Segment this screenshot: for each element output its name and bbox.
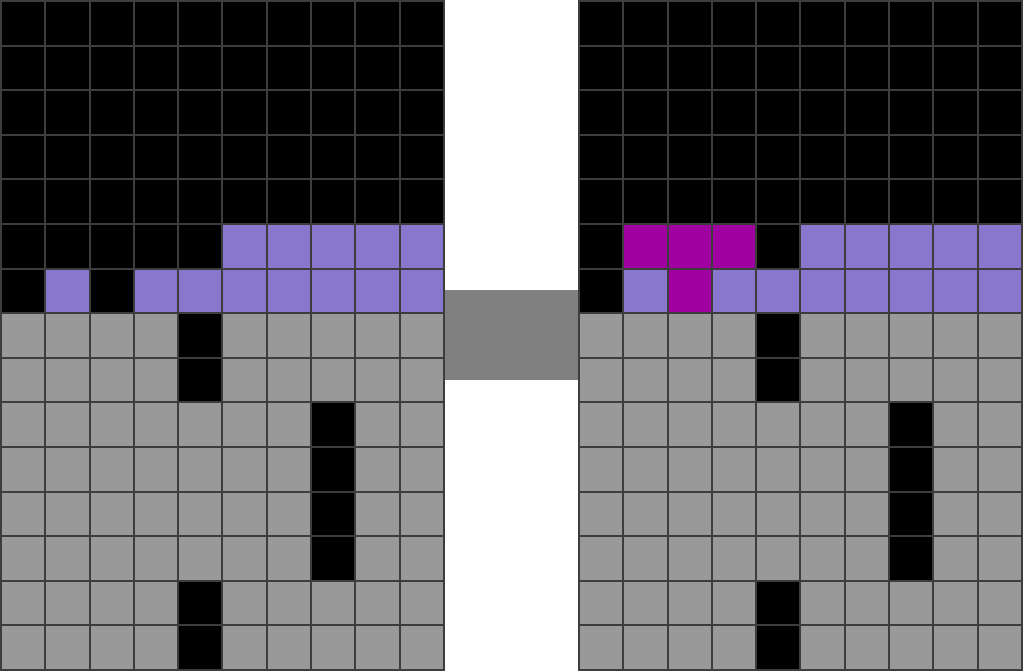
left-grid-cell-r12-c7: [312, 537, 354, 580]
right-grid-cell-r11-c1: [624, 493, 666, 536]
left-grid-cell-r1-c5: [223, 47, 265, 90]
right-grid-cell-r10-c8: [934, 448, 976, 491]
left-grid-cell-r14-c0: [2, 626, 44, 669]
left-grid-cell-r11-c2: [91, 493, 133, 536]
left-grid-cell-r11-c9: [401, 493, 443, 536]
left-grid-cell-r13-c9: [401, 582, 443, 625]
right-grid-cell-r5-c7: [890, 225, 932, 268]
right-grid-cell-r7-c6: [846, 314, 888, 357]
right-grid-cell-r3-c0: [580, 136, 622, 179]
right-grid-cell-r7-c2: [669, 314, 711, 357]
right-grid-cell-r7-c3: [713, 314, 755, 357]
right-grid-cell-r14-c9: [979, 626, 1021, 669]
left-grid-cell-r1-c0: [2, 47, 44, 90]
left-grid-cell-r8-c8: [356, 359, 398, 402]
right-grid-cell-r7-c4: [757, 314, 799, 357]
left-grid-cell-r5-c5: [223, 225, 265, 268]
left-grid-cell-r10-c1: [46, 448, 88, 491]
left-grid-cell-r12-c1: [46, 537, 88, 580]
right-grid-cell-r14-c4: [757, 626, 799, 669]
right-grid-cell-r9-c2: [669, 403, 711, 446]
left-grid-cell-r5-c2: [91, 225, 133, 268]
game-view: [0, 0, 1023, 671]
right-grid-cell-r13-c8: [934, 582, 976, 625]
left-grid-cell-r5-c1: [46, 225, 88, 268]
right-grid-cell-r11-c4: [757, 493, 799, 536]
right-grid-cell-r12-c1: [624, 537, 666, 580]
right-grid-cell-r14-c1: [624, 626, 666, 669]
right-grid-cell-r7-c0: [580, 314, 622, 357]
right-grid-cell-r4-c1: [624, 180, 666, 223]
left-grid-cell-r0-c1: [46, 2, 88, 45]
right-grid-cell-r2-c2: [669, 91, 711, 134]
right-grid-cell-r11-c7: [890, 493, 932, 536]
left-grid-cell-r2-c8: [356, 91, 398, 134]
left-grid-cell-r11-c4: [179, 493, 221, 536]
left-grid-cell-r1-c8: [356, 47, 398, 90]
right-grid-cell-r3-c1: [624, 136, 666, 179]
bridge-block: [445, 290, 578, 380]
right-grid-cell-r5-c9: [979, 225, 1021, 268]
left-grid-cell-r14-c8: [356, 626, 398, 669]
right-grid-cell-r0-c9: [979, 2, 1021, 45]
right-grid-cell-r5-c5: [801, 225, 843, 268]
left-grid-cell-r1-c9: [401, 47, 443, 90]
left-grid-cell-r10-c8: [356, 448, 398, 491]
right-grid-cell-r1-c4: [757, 47, 799, 90]
right-grid-cell-r0-c6: [846, 2, 888, 45]
right-grid-cell-r2-c6: [846, 91, 888, 134]
right-grid-cell-r1-c7: [890, 47, 932, 90]
right-grid-cell-r11-c3: [713, 493, 755, 536]
left-grid-cell-r10-c2: [91, 448, 133, 491]
left-grid-cell-r9-c1: [46, 403, 88, 446]
left-grid-cell-r11-c5: [223, 493, 265, 536]
left-grid-cell-r13-c3: [135, 582, 177, 625]
right-grid-cell-r12-c4: [757, 537, 799, 580]
left-grid-cell-r2-c6: [268, 91, 310, 134]
left-grid: [0, 0, 445, 671]
right-grid-cell-r6-c7: [890, 270, 932, 313]
left-grid-cell-r8-c1: [46, 359, 88, 402]
right-grid-cell-r2-c7: [890, 91, 932, 134]
right-grid-cell-r2-c8: [934, 91, 976, 134]
right-grid-cell-r5-c2: [669, 225, 711, 268]
left-grid-cell-r5-c3: [135, 225, 177, 268]
right-grid-cell-r9-c0: [580, 403, 622, 446]
left-grid-cell-r12-c9: [401, 537, 443, 580]
left-grid-cell-r0-c4: [179, 2, 221, 45]
right-grid-cell-r13-c9: [979, 582, 1021, 625]
right-grid-cell-r8-c4: [757, 359, 799, 402]
left-grid-cell-r6-c8: [356, 270, 398, 313]
right-grid-cell-r3-c3: [713, 136, 755, 179]
right-grid-cell-r9-c9: [979, 403, 1021, 446]
left-grid-cell-r1-c2: [91, 47, 133, 90]
right-grid-cell-r12-c3: [713, 537, 755, 580]
right-grid-cell-r8-c9: [979, 359, 1021, 402]
right-grid-cell-r4-c2: [669, 180, 711, 223]
left-grid-cell-r2-c0: [2, 91, 44, 134]
left-grid-cell-r6-c6: [268, 270, 310, 313]
left-grid-cell-r0-c7: [312, 2, 354, 45]
left-grid-cell-r0-c3: [135, 2, 177, 45]
right-grid-cell-r8-c2: [669, 359, 711, 402]
left-grid-cell-r3-c6: [268, 136, 310, 179]
left-grid-cell-r10-c0: [2, 448, 44, 491]
right-grid-cell-r14-c6: [846, 626, 888, 669]
left-grid-cell-r14-c7: [312, 626, 354, 669]
right-grid-cell-r6-c6: [846, 270, 888, 313]
right-grid-cell-r2-c0: [580, 91, 622, 134]
right-grid-cell-r8-c1: [624, 359, 666, 402]
left-grid-cell-r12-c4: [179, 537, 221, 580]
right-grid-cell-r12-c2: [669, 537, 711, 580]
left-grid-cell-r11-c3: [135, 493, 177, 536]
left-grid-cell-r13-c2: [91, 582, 133, 625]
left-grid-cell-r2-c4: [179, 91, 221, 134]
right-grid-cell-r9-c1: [624, 403, 666, 446]
right-grid-cell-r0-c8: [934, 2, 976, 45]
right-grid-cell-r3-c8: [934, 136, 976, 179]
right-grid: [578, 0, 1023, 671]
left-grid-cell-r9-c0: [2, 403, 44, 446]
left-grid-cell-r2-c1: [46, 91, 88, 134]
right-grid-cell-r1-c0: [580, 47, 622, 90]
left-grid-cell-r7-c9: [401, 314, 443, 357]
left-grid-cell-r4-c6: [268, 180, 310, 223]
right-grid-cell-r14-c8: [934, 626, 976, 669]
right-grid-cell-r10-c4: [757, 448, 799, 491]
left-grid-cell-r13-c4: [179, 582, 221, 625]
left-grid-cell-r5-c6: [268, 225, 310, 268]
left-grid-cell-r10-c5: [223, 448, 265, 491]
left-grid-cell-r2-c5: [223, 91, 265, 134]
right-grid-cell-r12-c9: [979, 537, 1021, 580]
left-grid-cell-r14-c1: [46, 626, 88, 669]
right-grid-cell-r9-c6: [846, 403, 888, 446]
left-grid-cell-r4-c5: [223, 180, 265, 223]
left-grid-cell-r14-c5: [223, 626, 265, 669]
right-grid-cell-r3-c5: [801, 136, 843, 179]
left-grid-cell-r12-c2: [91, 537, 133, 580]
right-grid-cell-r14-c7: [890, 626, 932, 669]
right-grid-cell-r14-c2: [669, 626, 711, 669]
left-grid-cell-r6-c2: [91, 270, 133, 313]
left-grid-cell-r4-c1: [46, 180, 88, 223]
right-grid-cell-r9-c7: [890, 403, 932, 446]
left-grid-cell-r14-c4: [179, 626, 221, 669]
left-grid-cell-r7-c5: [223, 314, 265, 357]
right-grid-cell-r8-c3: [713, 359, 755, 402]
right-grid-cell-r0-c3: [713, 2, 755, 45]
right-grid-cell-r0-c1: [624, 2, 666, 45]
right-grid-cell-r6-c2: [669, 270, 711, 313]
left-grid-cell-r4-c8: [356, 180, 398, 223]
left-grid-cell-r4-c3: [135, 180, 177, 223]
left-grid-cell-r5-c4: [179, 225, 221, 268]
right-grid-cell-r13-c6: [846, 582, 888, 625]
left-grid-cell-r6-c3: [135, 270, 177, 313]
left-grid-cell-r9-c3: [135, 403, 177, 446]
right-grid-cell-r12-c6: [846, 537, 888, 580]
right-grid-cell-r6-c1: [624, 270, 666, 313]
right-grid-cell-r8-c8: [934, 359, 976, 402]
left-grid-cell-r0-c0: [2, 2, 44, 45]
right-grid-cell-r1-c9: [979, 47, 1021, 90]
left-grid-cell-r13-c0: [2, 582, 44, 625]
left-grid-cell-r1-c7: [312, 47, 354, 90]
left-grid-cell-r10-c3: [135, 448, 177, 491]
left-grid-cell-r4-c0: [2, 180, 44, 223]
right-grid-cell-r11-c2: [669, 493, 711, 536]
left-grid-cell-r8-c9: [401, 359, 443, 402]
left-grid-cell-r10-c7: [312, 448, 354, 491]
left-grid-cell-r5-c8: [356, 225, 398, 268]
right-grid-cell-r11-c8: [934, 493, 976, 536]
right-grid-cell-r5-c1: [624, 225, 666, 268]
left-grid-cell-r14-c3: [135, 626, 177, 669]
left-grid-cell-r6-c7: [312, 270, 354, 313]
left-grid-cell-r0-c2: [91, 2, 133, 45]
right-grid-cell-r2-c3: [713, 91, 755, 134]
right-grid-cell-r1-c2: [669, 47, 711, 90]
left-grid-cell-r5-c0: [2, 225, 44, 268]
left-grid-cell-r12-c8: [356, 537, 398, 580]
right-grid-cell-r10-c7: [890, 448, 932, 491]
right-grid-cell-r8-c6: [846, 359, 888, 402]
left-grid-cell-r13-c5: [223, 582, 265, 625]
right-grid-cell-r5-c0: [580, 225, 622, 268]
left-grid-cell-r12-c3: [135, 537, 177, 580]
left-grid-cell-r9-c8: [356, 403, 398, 446]
left-grid-cell-r13-c1: [46, 582, 88, 625]
left-grid-cell-r8-c2: [91, 359, 133, 402]
left-grid-cell-r4-c9: [401, 180, 443, 223]
left-grid-cell-r7-c1: [46, 314, 88, 357]
left-grid-cell-r7-c4: [179, 314, 221, 357]
right-grid-cell-r5-c6: [846, 225, 888, 268]
left-grid-cell-r11-c8: [356, 493, 398, 536]
right-grid-cell-r0-c2: [669, 2, 711, 45]
right-grid-cell-r1-c1: [624, 47, 666, 90]
left-grid-cell-r2-c2: [91, 91, 133, 134]
right-grid-cell-r13-c7: [890, 582, 932, 625]
left-grid-cell-r3-c0: [2, 136, 44, 179]
right-grid-cell-r0-c0: [580, 2, 622, 45]
right-grid-cell-r7-c8: [934, 314, 976, 357]
right-grid-cell-r6-c4: [757, 270, 799, 313]
right-grid-cell-r6-c0: [580, 270, 622, 313]
left-grid-cell-r4-c7: [312, 180, 354, 223]
left-grid-cell-r6-c5: [223, 270, 265, 313]
left-grid-cell-r13-c6: [268, 582, 310, 625]
right-grid-cell-r4-c7: [890, 180, 932, 223]
right-grid-cell-r5-c3: [713, 225, 755, 268]
left-grid-cell-r3-c3: [135, 136, 177, 179]
right-grid-cell-r4-c8: [934, 180, 976, 223]
left-grid-cell-r2-c9: [401, 91, 443, 134]
right-grid-cell-r0-c4: [757, 2, 799, 45]
right-grid-cell-r12-c5: [801, 537, 843, 580]
left-grid-cell-r11-c0: [2, 493, 44, 536]
left-grid-cell-r5-c9: [401, 225, 443, 268]
right-grid-cell-r7-c7: [890, 314, 932, 357]
left-grid-cell-r6-c9: [401, 270, 443, 313]
right-grid-cell-r5-c8: [934, 225, 976, 268]
left-grid-cell-r6-c1: [46, 270, 88, 313]
right-grid-cell-r6-c3: [713, 270, 755, 313]
right-grid-cell-r12-c0: [580, 537, 622, 580]
left-grid-cell-r3-c8: [356, 136, 398, 179]
left-grid-cell-r4-c2: [91, 180, 133, 223]
left-grid-cell-r7-c8: [356, 314, 398, 357]
right-grid-cell-r13-c3: [713, 582, 755, 625]
right-grid-cell-r12-c7: [890, 537, 932, 580]
right-grid-cell-r7-c1: [624, 314, 666, 357]
right-grid-cell-r1-c6: [846, 47, 888, 90]
left-grid-cell-r8-c5: [223, 359, 265, 402]
right-grid-cell-r11-c0: [580, 493, 622, 536]
left-grid-cell-r12-c0: [2, 537, 44, 580]
left-grid-cell-r7-c3: [135, 314, 177, 357]
right-grid-cell-r0-c7: [890, 2, 932, 45]
left-grid-cell-r7-c0: [2, 314, 44, 357]
left-grid-cell-r8-c7: [312, 359, 354, 402]
right-grid-cell-r0-c5: [801, 2, 843, 45]
left-grid-cell-r3-c2: [91, 136, 133, 179]
right-grid-cell-r10-c5: [801, 448, 843, 491]
left-grid-cell-r7-c2: [91, 314, 133, 357]
right-grid-cell-r13-c2: [669, 582, 711, 625]
left-grid-cell-r0-c6: [268, 2, 310, 45]
left-grid-cell-r0-c8: [356, 2, 398, 45]
right-grid-cell-r3-c4: [757, 136, 799, 179]
left-grid-cell-r1-c3: [135, 47, 177, 90]
left-grid-cell-r9-c2: [91, 403, 133, 446]
right-grid-cell-r13-c0: [580, 582, 622, 625]
left-grid-cell-r4-c4: [179, 180, 221, 223]
right-grid-cell-r4-c9: [979, 180, 1021, 223]
right-grid-cell-r11-c5: [801, 493, 843, 536]
right-grid-cell-r3-c9: [979, 136, 1021, 179]
left-grid-cell-r0-c9: [401, 2, 443, 45]
right-grid-cell-r3-c7: [890, 136, 932, 179]
left-grid-cell-r3-c5: [223, 136, 265, 179]
right-grid-cell-r1-c5: [801, 47, 843, 90]
left-grid-cell-r3-c4: [179, 136, 221, 179]
left-grid-cell-r8-c3: [135, 359, 177, 402]
right-grid-cell-r2-c1: [624, 91, 666, 134]
left-grid-cell-r8-c6: [268, 359, 310, 402]
right-grid-cell-r6-c9: [979, 270, 1021, 313]
right-grid-cell-r4-c4: [757, 180, 799, 223]
right-grid-cell-r12-c8: [934, 537, 976, 580]
left-grid-cell-r7-c7: [312, 314, 354, 357]
right-grid-cell-r13-c1: [624, 582, 666, 625]
left-grid-cell-r3-c9: [401, 136, 443, 179]
right-grid-cell-r10-c2: [669, 448, 711, 491]
left-grid-cell-r14-c6: [268, 626, 310, 669]
left-grid-cell-r3-c1: [46, 136, 88, 179]
right-grid-cell-r9-c5: [801, 403, 843, 446]
right-grid-cell-r7-c5: [801, 314, 843, 357]
left-grid-cell-r11-c7: [312, 493, 354, 536]
right-grid-cell-r13-c5: [801, 582, 843, 625]
right-grid-cell-r14-c5: [801, 626, 843, 669]
right-grid-cell-r1-c8: [934, 47, 976, 90]
right-grid-cell-r11-c6: [846, 493, 888, 536]
left-grid-cell-r9-c6: [268, 403, 310, 446]
right-grid-cell-r3-c2: [669, 136, 711, 179]
right-grid-cell-r2-c5: [801, 91, 843, 134]
left-grid-cell-r14-c2: [91, 626, 133, 669]
right-grid-cell-r4-c0: [580, 180, 622, 223]
right-grid-cell-r13-c4: [757, 582, 799, 625]
right-grid-cell-r5-c4: [757, 225, 799, 268]
right-grid-cell-r2-c4: [757, 91, 799, 134]
left-grid-cell-r3-c7: [312, 136, 354, 179]
right-grid-cell-r7-c9: [979, 314, 1021, 357]
left-grid-cell-r1-c6: [268, 47, 310, 90]
left-grid-cell-r9-c9: [401, 403, 443, 446]
left-grid-cell-r10-c4: [179, 448, 221, 491]
left-grid-cell-r10-c6: [268, 448, 310, 491]
right-grid-cell-r9-c8: [934, 403, 976, 446]
left-grid-cell-r11-c6: [268, 493, 310, 536]
left-grid-cell-r13-c8: [356, 582, 398, 625]
right-grid-cell-r8-c0: [580, 359, 622, 402]
left-grid-cell-r12-c6: [268, 537, 310, 580]
left-grid-cell-r9-c4: [179, 403, 221, 446]
left-grid-cell-r0-c5: [223, 2, 265, 45]
right-grid-cell-r4-c5: [801, 180, 843, 223]
left-grid-cell-r13-c7: [312, 582, 354, 625]
right-grid-cell-r2-c9: [979, 91, 1021, 134]
left-grid-cell-r1-c1: [46, 47, 88, 90]
left-grid-cell-r1-c4: [179, 47, 221, 90]
left-grid-cell-r6-c4: [179, 270, 221, 313]
right-grid-cell-r6-c5: [801, 270, 843, 313]
left-grid-cell-r12-c5: [223, 537, 265, 580]
right-grid-cell-r8-c5: [801, 359, 843, 402]
left-grid-cell-r5-c7: [312, 225, 354, 268]
right-grid-cell-r10-c0: [580, 448, 622, 491]
center-gap: [445, 0, 578, 671]
right-grid-cell-r10-c3: [713, 448, 755, 491]
right-grid-cell-r4-c6: [846, 180, 888, 223]
left-grid-cell-r2-c3: [135, 91, 177, 134]
right-grid-cell-r8-c7: [890, 359, 932, 402]
left-grid-cell-r8-c0: [2, 359, 44, 402]
left-grid-cell-r9-c7: [312, 403, 354, 446]
right-grid-cell-r9-c4: [757, 403, 799, 446]
left-grid-cell-r11-c1: [46, 493, 88, 536]
right-grid-cell-r14-c3: [713, 626, 755, 669]
left-grid-cell-r8-c4: [179, 359, 221, 402]
right-grid-cell-r11-c9: [979, 493, 1021, 536]
right-grid-cell-r9-c3: [713, 403, 755, 446]
right-grid-cell-r10-c1: [624, 448, 666, 491]
left-grid-cell-r14-c9: [401, 626, 443, 669]
right-grid-cell-r4-c3: [713, 180, 755, 223]
right-grid-cell-r3-c6: [846, 136, 888, 179]
right-grid-cell-r10-c6: [846, 448, 888, 491]
left-grid-cell-r10-c9: [401, 448, 443, 491]
left-grid-cell-r9-c5: [223, 403, 265, 446]
left-grid-cell-r6-c0: [2, 270, 44, 313]
left-grid-cell-r2-c7: [312, 91, 354, 134]
